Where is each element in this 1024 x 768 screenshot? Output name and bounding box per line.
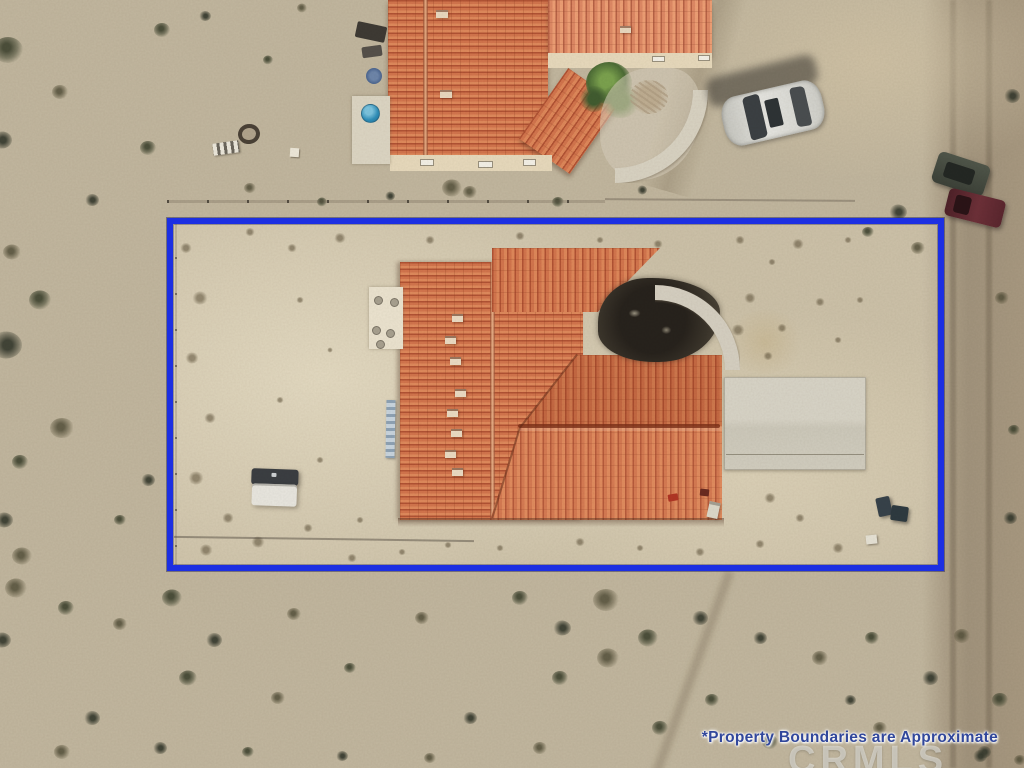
neighbor-window bbox=[478, 161, 493, 168]
patio-umbrella bbox=[366, 68, 382, 84]
roof-vent bbox=[440, 90, 452, 98]
white-marker bbox=[290, 148, 300, 158]
roof-vent bbox=[436, 10, 448, 18]
truck-cab bbox=[952, 194, 972, 215]
neighbor-window bbox=[420, 159, 434, 166]
neighbor-roof-ridge bbox=[423, 0, 428, 156]
roof-vent bbox=[620, 26, 631, 33]
aerial-photo: *Property Boundaries are Approximate CRM… bbox=[0, 0, 1024, 768]
neighbor-window bbox=[652, 56, 665, 62]
fence-line-top bbox=[167, 200, 605, 203]
blue-kiddie-pool bbox=[361, 104, 380, 123]
property-boundary-overlay bbox=[167, 218, 944, 571]
suv-window bbox=[942, 161, 975, 185]
neighbor-wall-right bbox=[548, 53, 712, 68]
neighbor-window bbox=[698, 55, 710, 61]
crmls-watermark: CRMLS bbox=[788, 739, 948, 768]
neighbor-window bbox=[523, 159, 536, 166]
